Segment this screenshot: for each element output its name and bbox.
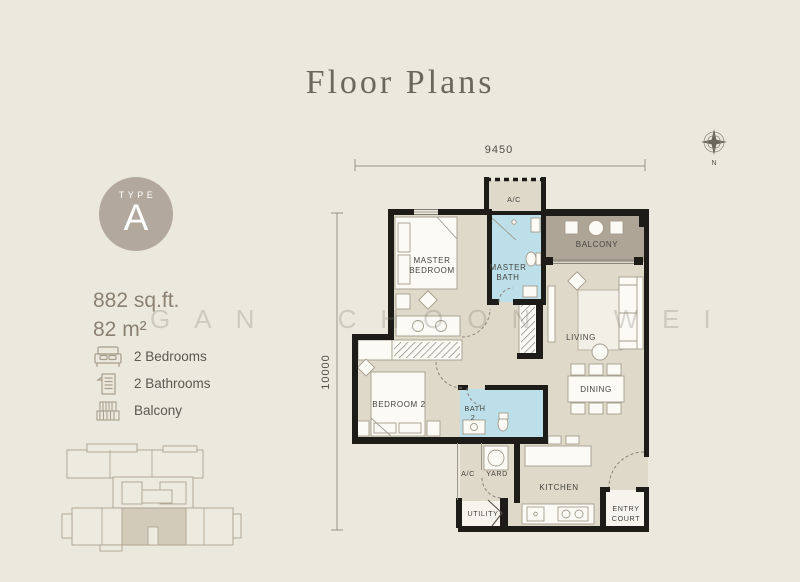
tv-console <box>548 286 555 342</box>
kitchen-island <box>525 446 591 466</box>
compass-north-label: N <box>711 160 716 167</box>
label-master-bedroom-1: MASTER <box>414 256 451 265</box>
label-entry-2: COURT <box>612 514 640 523</box>
label-entry-1: ENTRY <box>612 504 639 513</box>
label-living: LIVING <box>566 333 596 342</box>
label-bath2-2: 2 <box>471 413 476 422</box>
label-master-bedroom-2: BEDROOM <box>409 266 455 275</box>
floor-plan-canvas: 9450 10000 N <box>0 0 800 582</box>
label-balcony: BALCONY <box>576 240 618 249</box>
master-dresser <box>396 316 460 336</box>
key-plan <box>62 444 241 551</box>
label-utility: UTILITY <box>468 509 499 518</box>
label-bath2-1: BATH <box>464 404 485 413</box>
label-dining: DINING <box>580 385 612 394</box>
dimension-width-value: 9450 <box>485 144 513 156</box>
compass-icon: N <box>701 129 727 167</box>
dimension-height-value: 10000 <box>320 354 332 390</box>
balcony-floor <box>546 212 646 262</box>
label-ac-bottom: A/C <box>461 469 475 478</box>
label-bedroom2: BEDROOM 2 <box>372 400 425 409</box>
dimension-height: 10000 <box>320 213 343 530</box>
label-yard: YARD <box>486 469 508 478</box>
floor-plan-page: Floor Plans TYPE A 882 sq.ft. 82 m² 2 Be… <box>0 0 800 582</box>
label-kitchen: KITCHEN <box>539 483 578 492</box>
label-ac-top: A/C <box>507 195 521 204</box>
label-master-bath-1: MASTER <box>490 263 527 272</box>
label-master-bath-2: BATH <box>496 273 519 282</box>
dimension-width: 9450 <box>355 144 645 171</box>
